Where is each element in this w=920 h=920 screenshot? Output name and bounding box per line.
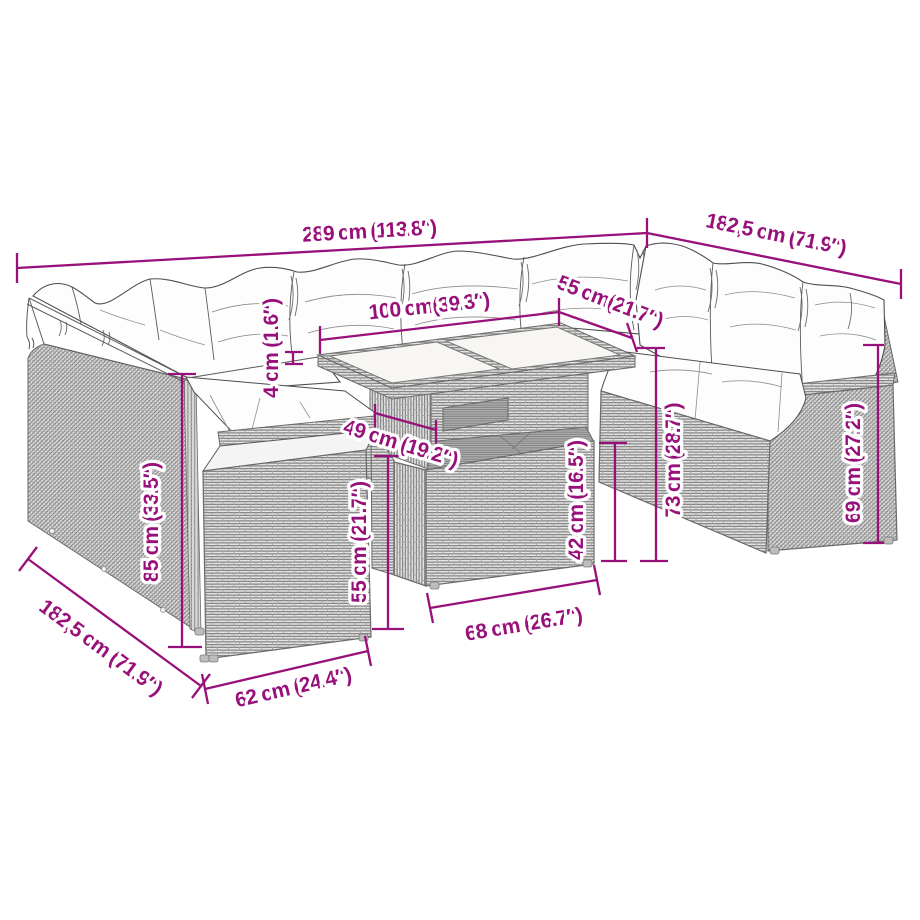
svg-text:85 cm (33.5″): 85 cm (33.5″)	[140, 462, 163, 582]
svg-text:42 cm (16.5″): 42 cm (16.5″)	[565, 440, 588, 560]
svg-text:69 cm (27.2″): 69 cm (27.2″)	[842, 403, 865, 523]
svg-text:73 cm (28.7″): 73 cm (28.7″)	[662, 403, 685, 518]
svg-text:4 cm (1.6″): 4 cm (1.6″)	[260, 298, 283, 398]
svg-text:55 cm (21.7″): 55 cm (21.7″)	[348, 481, 371, 603]
